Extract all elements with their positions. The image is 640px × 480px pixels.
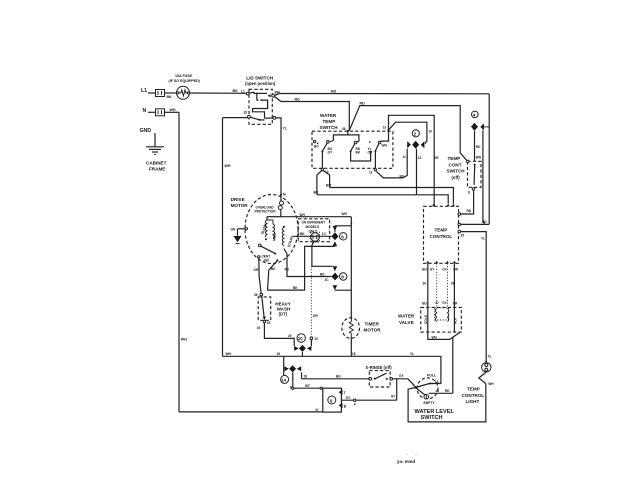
svg-text:WT: WT	[305, 384, 310, 388]
svg-text:(IF SO EQUIPPED): (IF SO EQUIPPED)	[169, 79, 201, 83]
svg-text:18: 18	[352, 352, 356, 356]
svg-text:SWITCH: SWITCH	[447, 169, 466, 174]
svg-text:13: 13	[383, 126, 387, 130]
svg-text:GN: GN	[231, 228, 236, 232]
svg-text:WH: WH	[300, 213, 306, 217]
svg-text:RD: RD	[295, 98, 301, 102]
svg-text:28: 28	[304, 375, 308, 379]
svg-text:BU: BU	[336, 374, 341, 378]
svg-text:OR: OR	[254, 268, 259, 272]
svg-text:PROTECTION: PROTECTION	[255, 210, 277, 214]
svg-text:20: 20	[288, 334, 292, 338]
svg-text:0: 0	[330, 398, 333, 403]
svg-text:12: 12	[418, 156, 422, 160]
svg-text:1C: 1C	[322, 232, 327, 236]
svg-text:X-RINSE (off): X-RINSE (off)	[365, 365, 392, 370]
svg-text:ON DIFFERENT: ON DIFFERENT	[302, 221, 326, 225]
svg-text:SW: SW	[264, 258, 269, 262]
svg-text:TEMP: TEMP	[323, 119, 336, 124]
svg-text:18: 18	[277, 352, 281, 356]
svg-text:YL: YL	[283, 127, 287, 131]
svg-text:10: 10	[314, 337, 318, 341]
svg-text:RD: RD	[445, 389, 450, 393]
svg-text:CONT: CONT	[449, 162, 462, 167]
svg-text:(DT): (DT)	[279, 312, 288, 317]
svg-text:BU: BU	[326, 183, 332, 187]
svg-text:TIMER: TIMER	[365, 322, 380, 327]
svg-text:2: 2	[414, 132, 417, 137]
svg-text:36: 36	[254, 293, 258, 297]
svg-text:RD: RD	[320, 272, 325, 276]
svg-text:FRAME: FRAME	[149, 167, 165, 172]
svg-text:VALVE: VALVE	[399, 320, 414, 325]
svg-text:BU: BU	[422, 267, 427, 271]
svg-text:8: 8	[468, 190, 470, 194]
svg-text:WH: WH	[342, 212, 348, 216]
svg-text:TEMP: TEMP	[448, 156, 461, 161]
svg-text:11: 11	[403, 155, 407, 159]
svg-text:BO: BO	[314, 145, 319, 149]
svg-text:35: 35	[267, 321, 271, 325]
svg-text:WH: WH	[488, 382, 494, 386]
svg-text:RD: RD	[476, 145, 481, 149]
svg-text:35: 35	[461, 234, 465, 238]
svg-text:BK: BK	[233, 89, 239, 93]
svg-text:16: 16	[435, 389, 439, 393]
svg-text:OR: OR	[453, 302, 458, 306]
svg-text:M: M	[283, 192, 286, 196]
svg-text:WH: WH	[181, 338, 187, 342]
svg-text:RD: RD	[285, 267, 290, 271]
svg-text:36: 36	[342, 127, 346, 131]
svg-text:YL: YL	[410, 352, 414, 356]
svg-text:BU: BU	[400, 174, 405, 178]
svg-text:40: 40	[257, 326, 261, 330]
svg-text:RD: RD	[467, 209, 472, 213]
svg-text:RD: RD	[482, 220, 487, 224]
svg-text:WATER: WATER	[398, 314, 415, 319]
svg-text:TEMP: TEMP	[435, 228, 448, 233]
svg-text:OR: OR	[313, 314, 318, 318]
svg-text:8: 8	[341, 275, 344, 280]
svg-text:11: 11	[369, 171, 373, 175]
svg-text:FULL: FULL	[427, 373, 437, 377]
svg-text:38: 38	[451, 282, 455, 286]
svg-text:18: 18	[244, 111, 248, 115]
svg-text:MOTOR: MOTOR	[364, 327, 382, 332]
svg-text:MED: MED	[272, 232, 277, 241]
svg-text:WH: WH	[225, 164, 231, 168]
svg-text:L1: L1	[241, 90, 245, 94]
svg-text:YL: YL	[481, 236, 485, 240]
svg-text:10: 10	[428, 130, 432, 134]
svg-text:30: 30	[423, 282, 427, 286]
svg-text:4: 4	[473, 113, 476, 118]
svg-text:F: F	[354, 403, 356, 407]
svg-text:(off): (off)	[452, 175, 461, 180]
svg-text:T: T	[344, 391, 346, 395]
svg-text:WATER: WATER	[320, 113, 337, 118]
svg-text:10: 10	[298, 336, 303, 341]
svg-text:BK: BK	[271, 267, 276, 271]
svg-text:WH: WH	[382, 143, 388, 147]
svg-text:WH: WH	[226, 352, 232, 356]
svg-text:OR: OR	[434, 156, 439, 160]
svg-text:6: 6	[341, 235, 344, 240]
svg-text:N: N	[143, 108, 147, 114]
svg-text:ya- mmd: ya- mmd	[397, 459, 415, 464]
svg-text:WH: WH	[432, 335, 438, 339]
svg-text:DRIVE: DRIVE	[231, 197, 245, 202]
svg-text:10A FUSE: 10A FUSE	[175, 74, 193, 78]
svg-text:BU: BU	[422, 302, 427, 306]
svg-text:LID SWITCH: LID SWITCH	[246, 76, 273, 81]
svg-text:LIGHT: LIGHT	[466, 399, 480, 404]
svg-text:TEMP: TEMP	[467, 387, 480, 392]
svg-text:BK: BK	[356, 151, 361, 155]
svg-text:WH: WH	[170, 108, 176, 112]
svg-text:CONTROL: CONTROL	[462, 393, 485, 398]
svg-text:GND: GND	[140, 128, 152, 134]
svg-text:MODELS: MODELS	[306, 225, 320, 229]
svg-text:(open position): (open position)	[245, 81, 276, 86]
svg-text:COLD: COLD	[424, 314, 428, 324]
svg-text:RD: RD	[360, 101, 366, 105]
svg-text:CONTROL: CONTROL	[430, 234, 453, 239]
svg-text:BK: BK	[167, 95, 173, 99]
svg-text:8: 8	[334, 229, 336, 233]
svg-text:MOTOR: MOTOR	[231, 203, 249, 208]
svg-text:BK: BK	[293, 286, 298, 290]
svg-text:HOT: HOT	[454, 317, 458, 324]
svg-text:SWITCH: SWITCH	[320, 125, 339, 130]
svg-text:9: 9	[351, 222, 353, 226]
svg-text:YL: YL	[488, 354, 492, 358]
svg-text:14: 14	[281, 378, 286, 383]
svg-text:EMPTY: EMPTY	[424, 401, 436, 405]
svg-text:BW: BW	[476, 156, 481, 160]
svg-text:L1: L1	[141, 88, 147, 94]
svg-text:CABINET: CABINET	[146, 161, 167, 166]
svg-text:SWITCH: SWITCH	[421, 415, 443, 421]
svg-text:BK: BK	[314, 191, 320, 195]
svg-text:OR: OR	[368, 151, 373, 155]
svg-text:RD: RD	[331, 89, 337, 93]
svg-text:47: 47	[435, 301, 439, 305]
svg-text:OVERLOAD: OVERLOAD	[256, 205, 275, 209]
svg-text:2C: 2C	[325, 278, 330, 282]
svg-text:BK: BK	[300, 232, 305, 236]
